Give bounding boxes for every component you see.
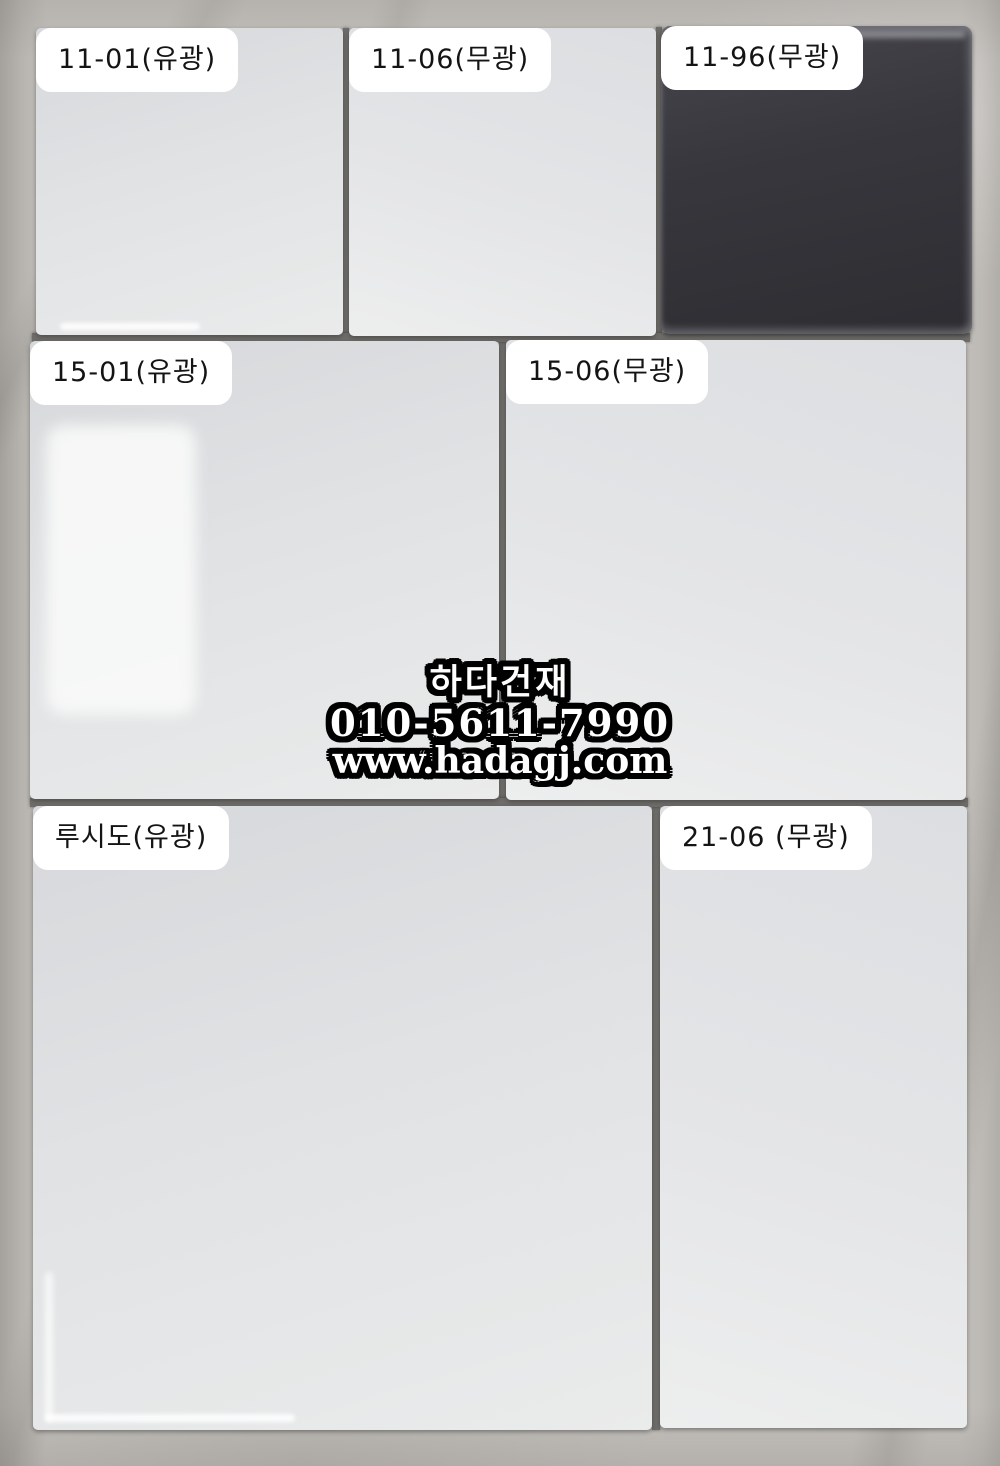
gloss-highlight (846, 30, 966, 38)
tile-lucido: 루시도(유광) (33, 806, 652, 1430)
tile-code-sticker: 11-01(유광) (36, 28, 238, 92)
tile-11-01: 11-01(유광) (36, 28, 343, 335)
tile-code-sticker: 15-06(무광) (506, 340, 708, 404)
grout-line (652, 806, 660, 1430)
tile-code-sticker: 11-06(무광) (349, 28, 551, 92)
gloss-highlight (45, 1414, 295, 1422)
tile-code-sticker: 15-01(유광) (30, 341, 232, 405)
watermark: 하다건재 010-5611-7990 www.hadagj.com (0, 664, 1000, 780)
tile-11-96: 11-96(무광) (661, 26, 972, 334)
tile-code-sticker: 11-96(무광) (661, 26, 863, 90)
tile-11-06: 11-06(무광) (349, 28, 656, 336)
tile-sample-photo: 11-01(유광) 11-06(무광) 11-96(무광) 15-01(유광) … (0, 0, 1000, 1466)
gloss-highlight (60, 323, 200, 330)
tile-21-06: 21-06 (무광) (660, 806, 967, 1428)
watermark-company: 하다건재 (0, 664, 1000, 702)
watermark-website: www.hadagj.com (0, 742, 1000, 780)
watermark-phone: 010-5611-7990 (0, 704, 1000, 742)
tile-code-sticker: 21-06 (무광) (660, 806, 872, 870)
gloss-highlight (45, 1272, 53, 1422)
tile-code-sticker: 루시도(유광) (33, 806, 229, 870)
